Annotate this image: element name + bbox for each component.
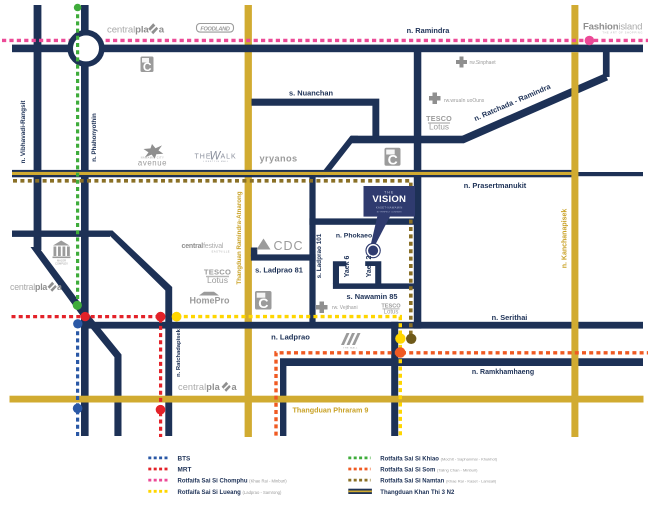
svg-text:Thangduan Ramindra-Atnarong: Thangduan Ramindra-Atnarong (236, 191, 243, 284)
svg-text:s. Ladprao 81: s. Ladprao 81 (255, 266, 303, 275)
svg-text:VISION: VISION (372, 194, 406, 205)
svg-text:n. Serithai: n. Serithai (492, 313, 528, 322)
svg-text:C: C (388, 152, 398, 168)
svg-text:s. Nuanchan: s. Nuanchan (289, 89, 333, 98)
svg-text:n. Prasertmanukit: n. Prasertmanukit (464, 181, 527, 190)
svg-text:n. Ramindra: n. Ramindra (407, 26, 451, 35)
svg-text:Thangduan Khan Thi 3 N2: Thangduan Khan Thi 3 N2 (380, 490, 455, 496)
svg-text:BTS: BTS (178, 455, 192, 462)
svg-text:Thangduan Phraram 9: Thangduan Phraram 9 (293, 406, 369, 415)
svg-text:MRT: MRT (178, 467, 192, 474)
svg-text:C: C (143, 60, 152, 74)
svg-text:avenue: avenue (138, 159, 167, 168)
svg-text:rw.wruaIn uoOuns: rw.wruaIn uoOuns (444, 98, 485, 104)
svg-text:COMPLEX: COMPLEX (55, 262, 68, 266)
svg-text:LIFESTYLE MALL: LIFESTYLE MALL (203, 160, 229, 163)
svg-text:Yaek 6: Yaek 6 (344, 255, 351, 277)
svg-text:centralpla: centralpla (107, 25, 149, 36)
svg-text:THE ART OF SHOPPING: THE ART OF SHOPPING (602, 31, 643, 34)
svg-text:THE MALL: THE MALL (343, 347, 358, 350)
svg-text:C: C (258, 296, 268, 312)
svg-text:EASTVILLE: EASTVILLE (212, 249, 230, 253)
svg-text:a: a (159, 25, 165, 36)
svg-text:n. Ratchadapisek: n. Ratchadapisek (176, 328, 182, 376)
svg-text:n. Phahonyothin: n. Phahonyothin (91, 113, 98, 162)
svg-text:BY PERFECT COMPANY: BY PERFECT COMPANY (377, 210, 403, 213)
svg-text:n. Phokaeo: n. Phokaeo (336, 233, 372, 240)
svg-text:a: a (57, 282, 62, 292)
svg-text:Yaek 2: Yaek 2 (366, 255, 373, 277)
svg-text:n. Ladprao: n. Ladprao (271, 333, 310, 342)
svg-text:KASET-NAWAMIN: KASET-NAWAMIN (376, 206, 403, 210)
svg-text:rw. Vejthani: rw. Vejthani (332, 305, 358, 311)
svg-text:HomePro: HomePro (189, 296, 230, 306)
svg-text:CDC: CDC (274, 239, 304, 253)
svg-text:s. Ladprao 101: s. Ladprao 101 (316, 233, 323, 278)
svg-text:centralpla: centralpla (10, 282, 47, 292)
svg-text:centralpla: centralpla (178, 382, 221, 392)
svg-text:centralfestival: centralfestival (182, 243, 224, 250)
svg-text:yryanos: yryanos (260, 154, 298, 164)
svg-text:rw.Sinphaet: rw.Sinphaet (470, 60, 497, 66)
svg-text:n. Ramkhamhaeng: n. Ramkhamhaeng (472, 369, 534, 376)
svg-text:Lotus: Lotus (384, 309, 399, 315)
svg-text:FOODLAND: FOODLAND (200, 27, 230, 33)
svg-text:n. Kanchanapisek: n. Kanchanapisek (562, 209, 569, 269)
svg-text:a: a (232, 382, 238, 392)
svg-text:Lotus: Lotus (429, 123, 449, 132)
svg-text:n. Vibhavadi-Rangsit: n. Vibhavadi-Rangsit (20, 100, 27, 164)
svg-text:ALK: ALK (221, 154, 237, 161)
svg-text:s. Nawamin 85: s. Nawamin 85 (347, 292, 398, 301)
